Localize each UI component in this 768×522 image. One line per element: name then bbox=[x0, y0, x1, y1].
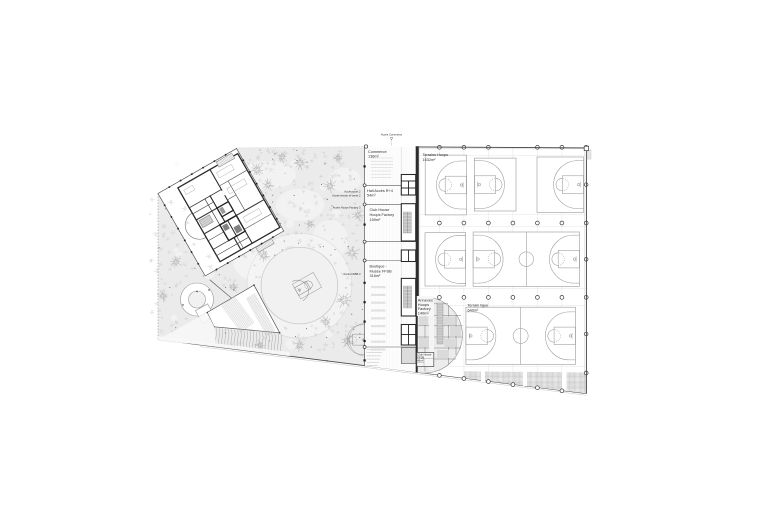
svg-text:159m²: 159m² bbox=[370, 218, 381, 222]
svg-text:136m²: 136m² bbox=[368, 155, 379, 159]
svg-text:Accès Hoops Factory 3: Accès Hoops Factory 3 bbox=[333, 206, 361, 210]
svg-text:140m²: 140m² bbox=[418, 311, 430, 316]
svg-text:Accès Commerce: Accès Commerce bbox=[381, 132, 403, 136]
svg-text:Accès FFBB 3: Accès FFBB 3 bbox=[343, 272, 361, 276]
svg-text:640m²: 640m² bbox=[468, 308, 479, 312]
svg-text:Accès sport 2: Accès sport 2 bbox=[344, 189, 361, 193]
svg-text:Hall Accès R+4: Hall Accès R+4 bbox=[367, 189, 393, 193]
svg-text:Terrains Hoops: Terrains Hoops bbox=[423, 153, 449, 157]
svg-text:Terrain ligue: Terrain ligue bbox=[468, 304, 489, 308]
svg-text:Boutique -: Boutique - bbox=[370, 265, 388, 269]
svg-text:Club House: Club House bbox=[370, 208, 390, 212]
svg-text:54m²: 54m² bbox=[367, 194, 376, 198]
svg-text:Musée FFSB: Musée FFSB bbox=[370, 269, 393, 273]
svg-text:Hoops Factory: Hoops Factory bbox=[370, 213, 395, 217]
svg-text:316m²: 316m² bbox=[370, 274, 381, 278]
svg-text:1632m²: 1632m² bbox=[423, 158, 437, 162]
svg-text:Accès terrain et vente 2: Accès terrain et vente 2 bbox=[332, 194, 361, 198]
svg-text:46m²: 46m² bbox=[417, 358, 423, 362]
svg-text:Commerce: Commerce bbox=[368, 150, 387, 154]
